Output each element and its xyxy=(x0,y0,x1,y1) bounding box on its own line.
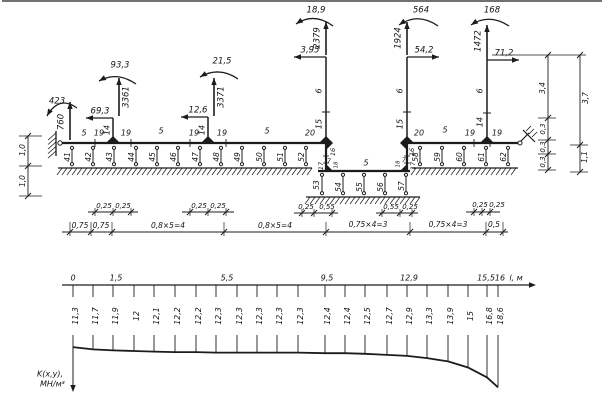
scheme-label: 0,3 xyxy=(539,123,547,134)
hatch-stroke xyxy=(375,197,380,204)
k-value-label: 11,3 xyxy=(71,307,80,324)
moment-value: 168 xyxy=(484,6,501,16)
k-curve xyxy=(73,347,498,387)
hatch-stroke xyxy=(267,168,272,175)
k-value-label: 12,1 xyxy=(152,307,161,324)
spring-node xyxy=(155,163,158,166)
hatch-stroke xyxy=(177,168,182,175)
arrowhead xyxy=(484,25,489,32)
support-hatch xyxy=(526,126,531,131)
moment-value: 21,5 xyxy=(213,57,232,67)
hatch-stroke xyxy=(471,168,476,175)
k-value-label: 15 xyxy=(466,311,475,321)
force-value: 3361 xyxy=(122,86,132,108)
arrowhead xyxy=(116,78,121,85)
hatch-stroke xyxy=(370,197,375,204)
spring-node xyxy=(383,173,386,176)
joint-fillet xyxy=(201,136,208,143)
hatch-stroke xyxy=(202,168,207,175)
subgrade-modulus-chart: 01,55,59,512,915,516l, м11,311,711,91212… xyxy=(37,274,536,393)
spring-node xyxy=(484,163,487,166)
pin-support-right xyxy=(518,141,522,145)
scheme-label: 0,25 xyxy=(489,201,505,209)
joint-fillet xyxy=(400,143,407,150)
k-value-label: 13,3 xyxy=(425,307,434,324)
spring-node xyxy=(283,163,286,166)
k-value-label: 12,3 xyxy=(296,307,305,324)
k-axis-title: МН/м³ xyxy=(40,380,65,389)
arrowhead xyxy=(399,19,406,25)
spring-node xyxy=(418,163,421,166)
scheme-label: 6 xyxy=(476,88,485,93)
hatch-stroke xyxy=(237,168,242,175)
k-value-label: 12,2 xyxy=(173,307,182,324)
hatch-stroke xyxy=(82,168,87,175)
spring-node xyxy=(418,146,421,149)
hatch-stroke xyxy=(511,168,516,175)
hatch-stroke xyxy=(335,197,340,204)
scheme-label: 41 xyxy=(63,152,72,162)
spring-node xyxy=(506,146,509,149)
spring-node xyxy=(112,163,115,166)
scheme-label: 47 xyxy=(191,152,200,162)
arrowhead xyxy=(181,114,188,119)
spring-node xyxy=(70,163,73,166)
spring-node xyxy=(240,163,243,166)
scheme-label: 14 xyxy=(198,125,207,135)
scheme-label: 18 xyxy=(396,160,402,167)
hatch-stroke xyxy=(197,168,202,175)
x-axis-label: 12,9 xyxy=(400,274,418,283)
arrowhead xyxy=(200,71,207,77)
hatch-stroke xyxy=(441,168,446,175)
hatch-stroke xyxy=(217,168,222,175)
hatch-stroke xyxy=(297,168,302,175)
hatch-stroke xyxy=(302,168,307,175)
hatch-stroke xyxy=(147,168,152,175)
spring-node xyxy=(506,163,509,166)
hatch-stroke xyxy=(182,168,187,175)
force-value: 54,2 xyxy=(415,46,434,56)
force-value: 3,95 xyxy=(301,46,320,56)
hatch-stroke xyxy=(506,168,511,175)
scheme-label: 0,3 xyxy=(539,156,547,167)
scheme-label: 0,25 xyxy=(210,202,226,210)
spring-node xyxy=(219,146,222,149)
moment-value: 564 xyxy=(413,6,429,16)
hatch-stroke xyxy=(307,168,312,175)
scheme-label: 56 xyxy=(376,182,385,192)
scheme-label: 14 xyxy=(103,125,112,135)
scheme-label: 0,25 xyxy=(472,201,488,209)
scheme-label: 18 xyxy=(334,161,340,168)
scheme-label: 61 xyxy=(477,152,486,162)
scheme-label: 58 xyxy=(411,152,420,162)
hatch-stroke xyxy=(421,168,426,175)
hatch-stroke xyxy=(162,168,167,175)
hatch-stroke xyxy=(365,197,370,204)
k-value-label: 12,2 xyxy=(194,307,203,324)
scheme-label: 0,8×5=4 xyxy=(151,221,185,230)
x-axis-label: 1,5 xyxy=(110,274,123,283)
hatch-stroke xyxy=(87,168,92,175)
scheme-label: 0,25 xyxy=(298,203,314,211)
spring-node xyxy=(155,146,158,149)
spring-node xyxy=(240,146,243,149)
hatch-stroke xyxy=(292,168,297,175)
scheme-label: 0,8×5=4 xyxy=(258,221,292,230)
arrowhead xyxy=(211,78,216,85)
scheme-label: 19 xyxy=(465,129,475,138)
scheme-label: 59 xyxy=(433,152,442,162)
joint-fillet xyxy=(326,136,333,143)
arrowhead xyxy=(296,18,303,24)
hatch-stroke xyxy=(360,197,365,204)
x-axis-label: 5,5 xyxy=(221,274,234,283)
hatch-stroke xyxy=(152,168,157,175)
k-value-label: 13,9 xyxy=(446,307,455,324)
scheme-label: 50 xyxy=(255,152,264,162)
hatch-stroke xyxy=(112,168,117,175)
spring-node xyxy=(462,163,465,166)
k-value-label: 12,3 xyxy=(275,307,284,324)
scheme-label: 5 xyxy=(264,127,269,136)
scheme-label: 0,25 xyxy=(115,202,131,210)
hatch-stroke xyxy=(436,168,441,175)
pin-support-left xyxy=(58,141,62,145)
hatch-stroke xyxy=(456,168,461,175)
spring-node xyxy=(198,146,201,149)
spring-node xyxy=(176,146,179,149)
hatch-stroke xyxy=(227,168,232,175)
joint-fillet xyxy=(400,136,407,143)
scheme-label: 62 xyxy=(499,152,508,162)
hatch-stroke xyxy=(157,168,162,175)
k-value-label: 12 xyxy=(132,311,141,321)
hatch-stroke xyxy=(355,197,360,204)
scheme-label: 54 xyxy=(334,182,343,192)
spring-node xyxy=(320,173,323,176)
hatch-stroke xyxy=(67,168,72,175)
hatch-stroke xyxy=(222,168,227,175)
force-value: 3371 xyxy=(217,86,227,108)
hatch-stroke xyxy=(92,168,97,175)
hatch-stroke xyxy=(345,197,350,204)
scheme-label: 16 xyxy=(329,148,337,156)
scheme-label: 15 xyxy=(315,119,324,129)
k-value-label: 18,6 xyxy=(496,307,505,324)
hatch-stroke xyxy=(122,168,127,175)
figure-svg: 42376093,3336169,321,5337112,618,923793,… xyxy=(0,0,604,414)
hatch-stroke xyxy=(62,168,67,175)
scheme-label: 15 xyxy=(396,119,405,129)
hatch-stroke xyxy=(192,168,197,175)
hatch-stroke xyxy=(277,168,282,175)
joint-fillet xyxy=(113,136,120,143)
k-value-label: 12,4 xyxy=(323,307,332,324)
hatch-stroke xyxy=(431,168,436,175)
force-value: 69,3 xyxy=(91,107,110,117)
spring-node xyxy=(320,192,323,195)
joint-fillet xyxy=(106,136,113,143)
force-value: 12,6 xyxy=(189,106,209,116)
hatch-stroke xyxy=(486,168,491,175)
spring-node xyxy=(70,146,73,149)
scanned-drawing-page: 42376093,3336169,321,5337112,618,923793,… xyxy=(0,0,604,414)
hatch-stroke xyxy=(350,197,355,204)
spring-node xyxy=(91,163,94,166)
moment-value: 93,3 xyxy=(111,61,130,71)
force-value: 1924 xyxy=(394,27,404,49)
scheme-label: 55 xyxy=(355,182,364,192)
scheme-label: 0,25 xyxy=(191,202,207,210)
hatch-stroke xyxy=(207,168,212,175)
hatch-stroke xyxy=(252,168,257,175)
k-value-label: 12,3 xyxy=(255,307,264,324)
moment-value: 18,9 xyxy=(307,6,326,16)
support-hatch xyxy=(532,132,537,137)
hatch-stroke xyxy=(172,168,177,175)
k-value-label: 16,8 xyxy=(485,307,494,324)
scheme-label: 45 xyxy=(148,152,157,162)
spring-node xyxy=(198,163,201,166)
k-axis-title: K(x,y), xyxy=(37,370,63,379)
scheme-label: 1,0 xyxy=(18,144,27,156)
scheme-label: 3,7 xyxy=(581,92,590,104)
arrowhead xyxy=(529,282,536,287)
force-value: 71,2 xyxy=(495,49,514,59)
joint-fillet xyxy=(208,136,215,143)
spring-node xyxy=(134,163,137,166)
x-axis-label: 15,5 xyxy=(477,274,495,283)
scheme-label: 0,25 xyxy=(402,203,418,211)
scheme-label: 14 xyxy=(476,117,485,127)
scheme-label: 5 xyxy=(363,159,368,168)
force-value: 760 xyxy=(57,114,67,130)
hatch-stroke xyxy=(501,168,506,175)
hatch-stroke xyxy=(496,168,501,175)
scheme-label: 53 xyxy=(312,180,321,190)
scheme-label: 0,25 xyxy=(96,202,112,210)
hatch-stroke xyxy=(461,168,466,175)
force-value: 1472 xyxy=(474,30,484,52)
hatch-stroke xyxy=(257,168,262,175)
hatch-stroke xyxy=(137,168,142,175)
spring-node xyxy=(219,163,222,166)
k-value-label: 12,3 xyxy=(235,307,244,324)
hatch-stroke xyxy=(72,168,77,175)
hatch-stroke xyxy=(272,168,277,175)
k-value-label: 12,3 xyxy=(214,307,223,324)
scheme-label: 5 xyxy=(442,126,447,135)
structural-scheme: 42376093,3336169,321,5337112,618,923793,… xyxy=(2,1,602,236)
hatch-stroke xyxy=(127,168,132,175)
spring-node xyxy=(440,146,443,149)
scheme-label: 48 xyxy=(212,152,221,162)
hatch-stroke xyxy=(426,168,431,175)
hatch-stroke xyxy=(132,168,137,175)
hatch-stroke xyxy=(232,168,237,175)
scheme-label: 42 xyxy=(84,152,93,162)
hatch-stroke xyxy=(262,168,267,175)
scheme-label: 0,75 xyxy=(93,221,110,230)
hatch-stroke xyxy=(340,197,345,204)
hatch-stroke xyxy=(102,168,107,175)
spring-node xyxy=(112,146,115,149)
hatch-stroke xyxy=(282,168,287,175)
scheme-label: 5 xyxy=(81,129,86,138)
scheme-label: 0,5 xyxy=(488,220,500,229)
hatch-stroke xyxy=(481,168,486,175)
k-value-label: 12,5 xyxy=(363,307,372,324)
scheme-label: 7 xyxy=(327,157,332,165)
x-axis-label: 0 xyxy=(70,274,75,283)
spring-node xyxy=(176,163,179,166)
x-axis-label: 16 xyxy=(495,274,505,283)
hatch-stroke xyxy=(466,168,471,175)
scheme-label: 3,4 xyxy=(538,82,547,94)
spring-node xyxy=(91,146,94,149)
hatch-stroke xyxy=(97,168,102,175)
spring-node xyxy=(262,163,265,166)
hatch-stroke xyxy=(117,168,122,175)
scheme-label: 43 xyxy=(105,152,114,162)
scheme-label: 0,3 xyxy=(539,141,547,152)
scheme-label: 51 xyxy=(276,152,285,162)
arrowhead xyxy=(70,385,75,392)
scheme-label: 52 xyxy=(297,152,306,162)
scheme-label: 20 xyxy=(414,129,424,138)
spring-node xyxy=(283,146,286,149)
spring-node xyxy=(362,173,365,176)
spring-node xyxy=(341,173,344,176)
scheme-label: 46 xyxy=(169,152,178,162)
hatch-stroke xyxy=(187,168,192,175)
spring-node xyxy=(134,146,137,149)
hatch-stroke xyxy=(77,168,82,175)
hatch-stroke xyxy=(142,168,147,175)
hatch-stroke xyxy=(476,168,481,175)
hatch-stroke xyxy=(451,168,456,175)
k-value-label: 12,7 xyxy=(385,307,394,324)
support-hatch xyxy=(529,129,534,134)
k-value-label: 12,9 xyxy=(405,307,414,324)
scheme-label: 5 xyxy=(158,127,163,136)
hatch-stroke xyxy=(167,168,172,175)
x-axis-label: l, м xyxy=(509,274,522,283)
moment-value: 423 xyxy=(49,97,65,107)
spring-node xyxy=(304,146,307,149)
hatch-stroke xyxy=(57,168,62,175)
spring-node xyxy=(462,146,465,149)
k-value-label: 11,9 xyxy=(111,307,120,324)
hatch-stroke xyxy=(247,168,252,175)
scheme-label: 1,1 xyxy=(580,151,589,163)
scheme-label: 60 xyxy=(455,152,464,162)
spring-node xyxy=(404,192,407,195)
k-value-label: 11,7 xyxy=(91,307,100,324)
spring-node xyxy=(484,146,487,149)
x-axis-label: 9,5 xyxy=(321,274,334,283)
scheme-label: 44 xyxy=(127,152,136,162)
spring-node xyxy=(440,163,443,166)
scheme-label: 1,0 xyxy=(18,175,27,187)
scheme-label: 19 xyxy=(121,129,131,138)
scheme-label: 6 xyxy=(396,88,405,93)
spring-node xyxy=(404,173,407,176)
hatch-stroke xyxy=(107,168,112,175)
scheme-label: 49 xyxy=(233,152,242,162)
scheme-label: 19 xyxy=(492,129,502,138)
k-value-label: 12,4 xyxy=(343,307,352,324)
scheme-label: 0,55 xyxy=(383,203,399,211)
hatch-stroke xyxy=(212,168,217,175)
scheme-label: 0,75 xyxy=(72,221,89,230)
hatch-stroke xyxy=(491,168,496,175)
scheme-label: 6 xyxy=(315,88,324,93)
scheme-label: 0,75×4=3 xyxy=(349,220,388,229)
scheme-label: 19 xyxy=(217,129,227,138)
hatch-stroke xyxy=(446,168,451,175)
scheme-label: 0,55 xyxy=(319,203,335,211)
spring-node xyxy=(262,146,265,149)
hatch-stroke xyxy=(287,168,292,175)
arrowhead xyxy=(471,19,478,25)
scheme-label: 17 xyxy=(317,161,325,170)
scheme-label: 57 xyxy=(397,181,406,191)
scheme-label: 0,75×4=3 xyxy=(429,220,468,229)
arrowhead xyxy=(99,75,106,81)
hatch-stroke xyxy=(242,168,247,175)
spring-node xyxy=(304,163,307,166)
